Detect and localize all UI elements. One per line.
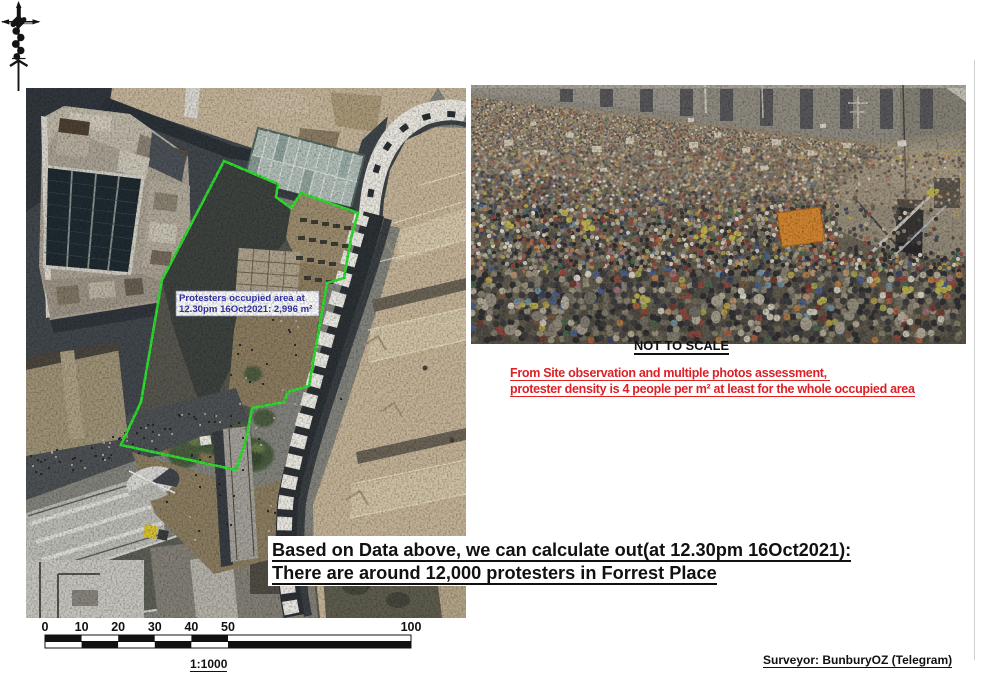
svg-text:50: 50 bbox=[221, 620, 235, 634]
svg-text:20: 20 bbox=[111, 620, 125, 634]
svg-text:30: 30 bbox=[148, 620, 162, 634]
svg-text:10: 10 bbox=[75, 620, 89, 634]
svg-text:40: 40 bbox=[184, 620, 198, 634]
svg-text:0: 0 bbox=[42, 620, 49, 634]
svg-text:100: 100 bbox=[401, 620, 422, 634]
